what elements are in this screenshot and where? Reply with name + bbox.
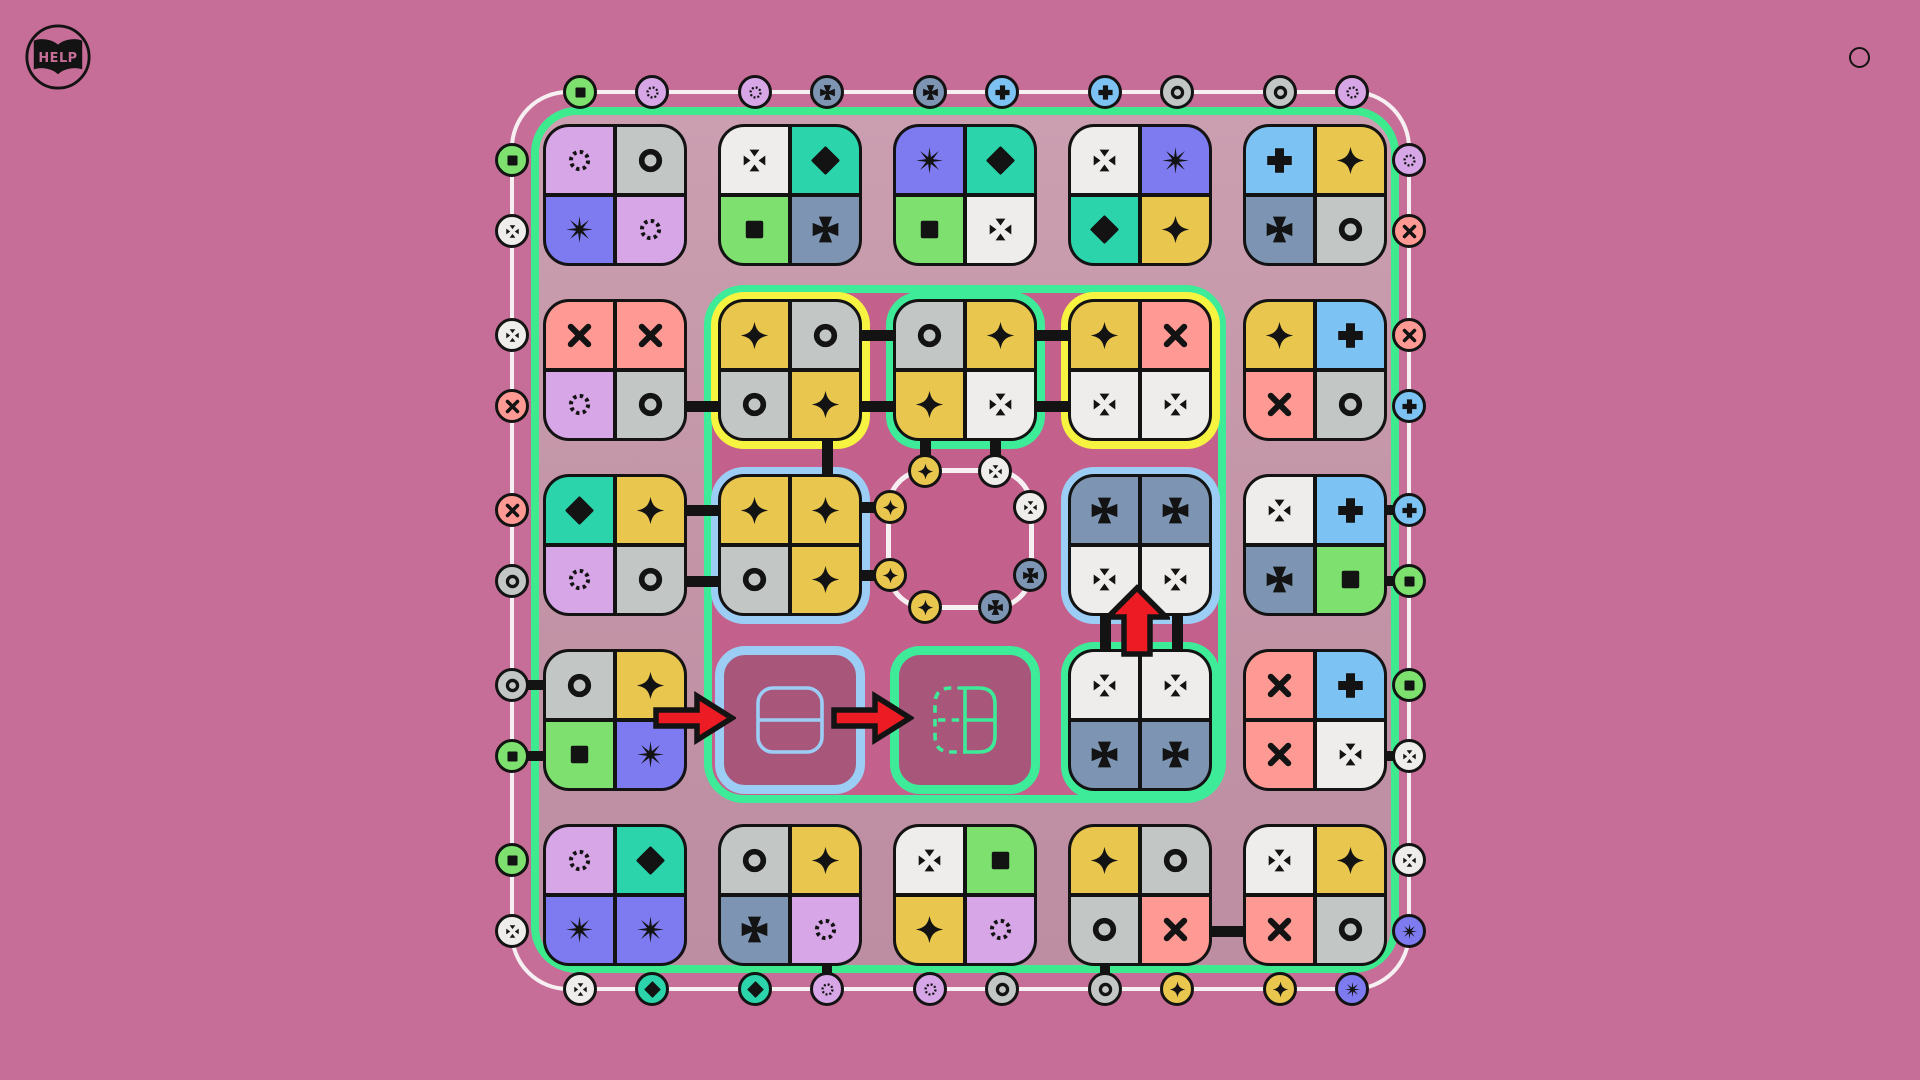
edge-token-right-8-dotted-x — [1392, 739, 1426, 773]
ring-token-left-lower-star4 — [873, 558, 907, 592]
dotted-x-icon — [1088, 144, 1121, 177]
cell-pattee — [1071, 722, 1138, 788]
cell-dotted-circle — [617, 197, 684, 263]
ring-icon — [634, 563, 667, 596]
edge-token-top-4-pattee — [810, 75, 844, 109]
x-icon — [634, 319, 667, 352]
dotted-circle-icon — [818, 980, 837, 999]
edge-token-top-8-ring — [1160, 75, 1194, 109]
cell-ring — [1317, 897, 1384, 963]
burst-icon — [913, 144, 946, 177]
arrow-up-hint — [1104, 584, 1170, 658]
square-icon — [503, 747, 522, 766]
puzzle-board — [0, 0, 1920, 1080]
ring-icon — [809, 319, 842, 352]
edge-token-bottom-1-dotted-x — [563, 972, 597, 1006]
dotted-x-icon — [984, 213, 1017, 246]
ring-token-left-upper-star4 — [873, 490, 907, 524]
cell-plus — [1317, 477, 1384, 543]
cell-plus — [1317, 652, 1384, 718]
ring-icon — [1168, 83, 1187, 102]
x-icon — [1263, 388, 1296, 421]
pattee-icon — [738, 913, 771, 946]
square-icon — [1400, 572, 1419, 591]
edge-token-left-3-dotted-x — [495, 318, 529, 352]
tile-r3c5[interactable] — [1243, 474, 1387, 616]
cell-x — [546, 302, 613, 368]
dotted-circle-icon — [563, 388, 596, 421]
square-icon — [503, 851, 522, 870]
star4-icon — [916, 598, 935, 617]
cell-dotted-x — [896, 827, 963, 893]
x-icon — [1263, 738, 1296, 771]
cell-dotted-x — [1246, 827, 1313, 893]
tile-r3c1[interactable] — [543, 474, 687, 616]
x-icon — [1400, 326, 1419, 345]
cell-diamond — [792, 127, 859, 193]
cell-dotted-x — [1071, 372, 1138, 438]
dotted-circle-icon — [984, 913, 1017, 946]
dotted-circle-icon — [563, 844, 596, 877]
star4-icon — [1271, 980, 1290, 999]
burst-icon — [1343, 980, 1362, 999]
square-icon — [738, 213, 771, 246]
cell-ring — [617, 372, 684, 438]
tile-r2c5[interactable] — [1243, 299, 1387, 441]
edge-token-right-7-square — [1392, 668, 1426, 702]
burst-icon — [563, 913, 596, 946]
star4-icon — [809, 388, 842, 421]
cell-ring — [1317, 372, 1384, 438]
cell-star4 — [617, 477, 684, 543]
tile-r1c5[interactable] — [1243, 124, 1387, 266]
star4-icon — [1263, 319, 1296, 352]
edge-token-left-5-x — [495, 493, 529, 527]
tile-r1c3[interactable] — [893, 124, 1037, 266]
help-button[interactable]: HELP — [24, 23, 92, 91]
tile-r5c2[interactable] — [718, 824, 862, 966]
arrow-right-hint — [830, 691, 914, 745]
edge-token-top-10-dotted-circle — [1335, 75, 1369, 109]
tile-r5c5[interactable] — [1243, 824, 1387, 966]
tile-r5c1[interactable] — [543, 824, 687, 966]
cell-star4 — [1071, 302, 1138, 368]
ring-icon — [1159, 844, 1192, 877]
edge-token-bottom-8-star4 — [1160, 972, 1194, 1006]
edge-token-bottom-10-burst — [1335, 972, 1369, 1006]
edge-token-bottom-5-dotted-circle — [913, 972, 947, 1006]
dotted-circle-icon — [563, 563, 596, 596]
cell-diamond — [967, 127, 1034, 193]
ring-token-bottom-right-pattee — [978, 590, 1012, 624]
cell-star4 — [896, 372, 963, 438]
edge-token-top-3-dotted-circle — [738, 75, 772, 109]
cell-diamond — [617, 827, 684, 893]
diamond-icon — [809, 144, 842, 177]
plus-icon — [1096, 83, 1115, 102]
edge-token-top-1-square — [563, 75, 597, 109]
cell-star4 — [896, 897, 963, 963]
edge-token-top-2-dotted-circle — [635, 75, 669, 109]
dotted-x-icon — [986, 462, 1005, 481]
cell-x — [1142, 897, 1209, 963]
diamond-icon — [643, 980, 662, 999]
dotted-x-icon — [1159, 669, 1192, 702]
burst-icon — [634, 913, 667, 946]
edge-token-left-10-dotted-x — [495, 914, 529, 948]
plus-icon — [1334, 319, 1367, 352]
edge-token-bottom-7-ring — [1088, 972, 1122, 1006]
plus-icon — [993, 83, 1012, 102]
star4-icon — [809, 844, 842, 877]
cell-square — [721, 197, 788, 263]
dotted-x-icon — [1021, 498, 1040, 517]
edge-token-left-4-x — [495, 389, 529, 423]
cell-square — [546, 722, 613, 788]
cell-burst — [546, 897, 613, 963]
dotted-x-icon — [503, 222, 522, 241]
edge-token-right-10-burst — [1392, 914, 1426, 948]
tile-r1c2[interactable] — [718, 124, 862, 266]
menu-circle-button[interactable] — [1849, 47, 1870, 68]
star4-icon — [881, 566, 900, 585]
ring-icon — [1334, 213, 1367, 246]
cell-square — [1317, 547, 1384, 613]
star4-icon — [738, 319, 771, 352]
cell-ring — [1142, 827, 1209, 893]
cell-star4 — [1071, 827, 1138, 893]
cell-pattee — [1142, 477, 1209, 543]
dotted-circle-icon — [634, 213, 667, 246]
cell-diamond — [546, 477, 613, 543]
dotted-x-icon — [1334, 738, 1367, 771]
tile-r5c4[interactable] — [1068, 824, 1212, 966]
dotted-circle-icon — [563, 144, 596, 177]
cell-ring — [896, 302, 963, 368]
star4-icon — [1168, 980, 1187, 999]
ring-icon — [738, 844, 771, 877]
ring-token-bottom-left-star4 — [908, 590, 942, 624]
cell-pattee — [1246, 197, 1313, 263]
cell-burst — [617, 897, 684, 963]
burst-icon — [1159, 144, 1192, 177]
edge-token-left-9-square — [495, 843, 529, 877]
edge-token-right-3-x — [1392, 318, 1426, 352]
dotted-circle-icon — [643, 83, 662, 102]
ring-icon — [1334, 913, 1367, 946]
cell-x — [1246, 897, 1313, 963]
edge-token-right-1-dotted-circle — [1392, 143, 1426, 177]
ring-icon — [993, 980, 1012, 999]
dotted-circle-icon — [809, 913, 842, 946]
dotted-x-icon — [1088, 669, 1121, 702]
pattee-icon — [818, 83, 837, 102]
edge-token-right-6-square — [1392, 564, 1426, 598]
square-icon — [984, 844, 1017, 877]
ring-token-top-right-dotted-x — [978, 454, 1012, 488]
slot-ghost-mixed-split-icon — [929, 684, 1001, 756]
edge-token-bottom-4-dotted-circle — [810, 972, 844, 1006]
diamond-icon — [746, 980, 765, 999]
cell-ring — [617, 547, 684, 613]
cell-x — [1246, 652, 1313, 718]
ring-icon — [1096, 980, 1115, 999]
diamond-icon — [563, 494, 596, 527]
edge-token-bottom-6-ring — [985, 972, 1019, 1006]
cell-star4 — [1246, 302, 1313, 368]
cell-dotted-x — [1142, 652, 1209, 718]
cell-dotted-circle — [792, 897, 859, 963]
cell-x — [1142, 302, 1209, 368]
square-icon — [503, 151, 522, 170]
tile-r2c1[interactable] — [543, 299, 687, 441]
cell-star4 — [1317, 127, 1384, 193]
cell-square — [967, 827, 1034, 893]
cell-x — [1246, 722, 1313, 788]
dotted-circle-icon — [1343, 83, 1362, 102]
cell-pattee — [792, 197, 859, 263]
arrow-right-hint — [652, 691, 736, 745]
pattee-icon — [1088, 738, 1121, 771]
diamond-icon — [1088, 213, 1121, 246]
ring-icon — [738, 563, 771, 596]
dotted-circle-icon — [746, 83, 765, 102]
tile-r3c2[interactable] — [718, 474, 862, 616]
square-icon — [1400, 676, 1419, 695]
dotted-x-icon — [913, 844, 946, 877]
star4-icon — [984, 319, 1017, 352]
square-icon — [571, 83, 590, 102]
cell-dotted-circle — [546, 372, 613, 438]
x-icon — [503, 501, 522, 520]
dotted-x-icon — [1159, 388, 1192, 421]
ring-token-right-upper-dotted-x — [1013, 490, 1047, 524]
pattee-icon — [1263, 213, 1296, 246]
help-label: HELP — [38, 51, 77, 66]
ring-token-right-lower-pattee — [1013, 558, 1047, 592]
cell-ring — [1071, 897, 1138, 963]
cell-pattee — [721, 897, 788, 963]
edge-token-right-9-dotted-x — [1392, 843, 1426, 877]
ring-icon — [503, 572, 522, 591]
dotted-x-icon — [503, 326, 522, 345]
cell-x — [617, 302, 684, 368]
cell-star4 — [721, 477, 788, 543]
cell-star4 — [967, 302, 1034, 368]
cell-pattee — [1246, 547, 1313, 613]
tile-r5c3[interactable] — [893, 824, 1037, 966]
tile-r4c4[interactable] — [1068, 649, 1212, 791]
edge-token-top-5-pattee — [913, 75, 947, 109]
cell-ring — [721, 827, 788, 893]
edge-token-right-2-x — [1392, 214, 1426, 248]
cell-dotted-x — [967, 372, 1034, 438]
cell-star4 — [792, 477, 859, 543]
cell-star4 — [792, 372, 859, 438]
cell-dotted-x — [1071, 127, 1138, 193]
star4-icon — [913, 913, 946, 946]
pattee-icon — [809, 213, 842, 246]
edge-token-left-8-square — [495, 739, 529, 773]
tile-r1c4[interactable] — [1068, 124, 1212, 266]
star4-icon — [1334, 844, 1367, 877]
cell-star4 — [1142, 197, 1209, 263]
square-icon — [913, 213, 946, 246]
star4-icon — [881, 498, 900, 517]
pattee-icon — [1088, 494, 1121, 527]
dotted-circle-icon — [1400, 151, 1419, 170]
burst-icon — [563, 213, 596, 246]
star4-icon — [1088, 844, 1121, 877]
cell-square — [896, 197, 963, 263]
cell-ring — [546, 652, 613, 718]
edge-token-bottom-9-star4 — [1263, 972, 1297, 1006]
star4-icon — [738, 494, 771, 527]
cell-x — [1246, 372, 1313, 438]
dotted-x-icon — [1263, 844, 1296, 877]
pattee-icon — [1159, 494, 1192, 527]
x-icon — [1263, 669, 1296, 702]
tile-r2c3[interactable] — [893, 299, 1037, 441]
cell-ring — [1317, 197, 1384, 263]
star4-icon — [1159, 213, 1192, 246]
dotted-x-icon — [984, 388, 1017, 421]
cell-star4 — [721, 302, 788, 368]
cell-ring — [792, 302, 859, 368]
diamond-icon — [634, 844, 667, 877]
cell-dotted-x — [1142, 372, 1209, 438]
pattee-icon — [986, 598, 1005, 617]
edge-token-top-9-ring — [1263, 75, 1297, 109]
star4-icon — [1334, 144, 1367, 177]
pattee-icon — [1021, 566, 1040, 585]
edge-token-top-6-plus — [985, 75, 1019, 109]
star4-icon — [1088, 319, 1121, 352]
cell-plus — [1246, 127, 1313, 193]
plus-icon — [1263, 144, 1296, 177]
cell-dotted-circle — [546, 127, 613, 193]
x-icon — [1263, 913, 1296, 946]
cell-dotted-circle — [546, 547, 613, 613]
tile-r2c4[interactable] — [1068, 299, 1212, 441]
cell-star4 — [792, 547, 859, 613]
ring-icon — [913, 319, 946, 352]
center-ring-path — [886, 468, 1034, 610]
dotted-x-icon — [1263, 494, 1296, 527]
star4-icon — [809, 563, 842, 596]
pattee-icon — [1159, 738, 1192, 771]
cell-dotted-x — [1071, 652, 1138, 718]
star4-icon — [916, 462, 935, 481]
plus-icon — [1400, 501, 1419, 520]
cell-dotted-x — [1246, 477, 1313, 543]
square-icon — [1334, 563, 1367, 596]
edge-token-right-4-plus — [1392, 389, 1426, 423]
square-icon — [563, 738, 596, 771]
edge-token-left-7-ring — [495, 668, 529, 702]
cell-burst — [1142, 127, 1209, 193]
pattee-icon — [921, 83, 940, 102]
x-icon — [1159, 913, 1192, 946]
dotted-x-icon — [1400, 747, 1419, 766]
cell-dotted-x — [1317, 722, 1384, 788]
cell-burst — [896, 127, 963, 193]
cell-diamond — [1071, 197, 1138, 263]
burst-icon — [1400, 922, 1419, 941]
tile-r2c2[interactable] — [718, 299, 862, 441]
tile-r4c5[interactable] — [1243, 649, 1387, 791]
star4-icon — [913, 388, 946, 421]
ring-icon — [1271, 83, 1290, 102]
cell-pattee — [1071, 477, 1138, 543]
ring-token-top-left-star4 — [908, 454, 942, 488]
plus-icon — [1334, 494, 1367, 527]
cell-star4 — [792, 827, 859, 893]
cell-dotted-x — [721, 127, 788, 193]
tile-r1c1[interactable] — [543, 124, 687, 266]
cell-star4 — [1317, 827, 1384, 893]
x-icon — [503, 397, 522, 416]
slot-ghost-h-split-icon — [754, 684, 826, 756]
plus-icon — [1400, 397, 1419, 416]
pattee-icon — [1263, 563, 1296, 596]
cell-burst — [546, 197, 613, 263]
cell-ring — [721, 547, 788, 613]
edge-token-bottom-3-diamond — [738, 972, 772, 1006]
x-icon — [1400, 222, 1419, 241]
cell-plus — [1317, 302, 1384, 368]
edge-token-top-7-plus — [1088, 75, 1122, 109]
dotted-circle-icon — [921, 980, 940, 999]
edge-token-left-1-square — [495, 143, 529, 177]
dotted-x-icon — [1400, 851, 1419, 870]
ring-icon — [634, 144, 667, 177]
ring-icon — [634, 388, 667, 421]
edge-token-right-5-plus — [1392, 493, 1426, 527]
cell-ring — [617, 127, 684, 193]
cell-dotted-circle — [967, 897, 1034, 963]
dotted-x-icon — [503, 922, 522, 941]
ring-icon — [1334, 388, 1367, 421]
star4-icon — [634, 494, 667, 527]
edge-token-left-6-ring — [495, 564, 529, 598]
ring-icon — [503, 676, 522, 695]
x-icon — [563, 319, 596, 352]
cell-dotted-circle — [546, 827, 613, 893]
ring-icon — [1088, 913, 1121, 946]
edge-token-left-2-dotted-x — [495, 214, 529, 248]
edge-token-bottom-2-diamond — [635, 972, 669, 1006]
dotted-x-icon — [1088, 388, 1121, 421]
diamond-icon — [984, 144, 1017, 177]
plus-icon — [1334, 669, 1367, 702]
dotted-x-icon — [738, 144, 771, 177]
x-icon — [1159, 319, 1192, 352]
cell-dotted-x — [967, 197, 1034, 263]
ring-icon — [738, 388, 771, 421]
cell-ring — [721, 372, 788, 438]
ring-icon — [563, 669, 596, 702]
cell-pattee — [1142, 722, 1209, 788]
dotted-x-icon — [571, 980, 590, 999]
star4-icon — [809, 494, 842, 527]
